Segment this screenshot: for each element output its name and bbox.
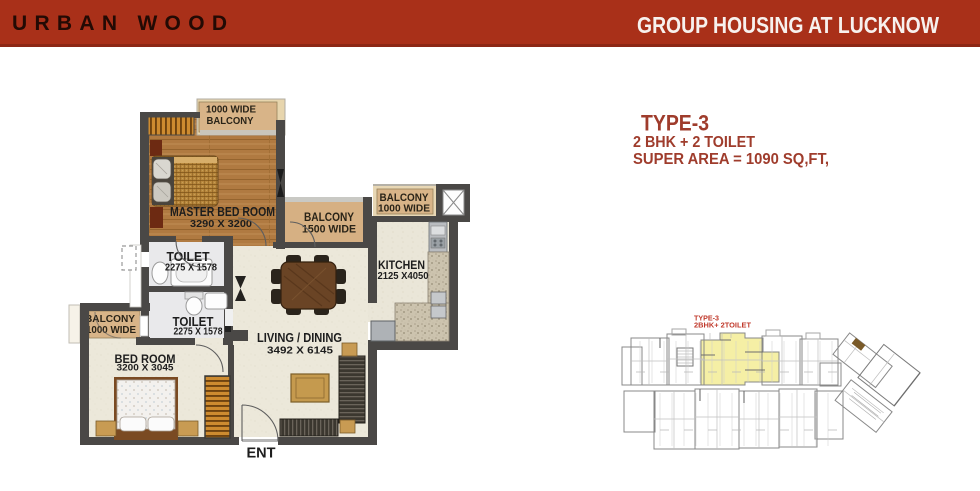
svg-text:BALCONY: BALCONY — [304, 212, 354, 224]
svg-text:1000 WIDE: 1000 WIDE — [378, 203, 430, 215]
svg-text:SUPER AREA = 1090 SQ,FT,: SUPER AREA = 1090 SQ,FT, — [633, 151, 829, 168]
svg-text:2BHK+ 2TOILET: 2BHK+ 2TOILET — [694, 321, 751, 330]
svg-text:GROUP HOUSING AT LUCKNOW: GROUP HOUSING AT LUCKNOW — [637, 12, 939, 38]
svg-text:3200 X 3045: 3200 X 3045 — [117, 363, 175, 374]
svg-text:3290 X 3200: 3290 X 3200 — [190, 218, 252, 230]
svg-text:2125 X4050: 2125 X4050 — [378, 271, 429, 282]
svg-text:TYPE-3: TYPE-3 — [641, 111, 709, 136]
svg-text:1000 WIDE: 1000 WIDE — [86, 324, 136, 336]
svg-text:MASTER BED ROOM: MASTER BED ROOM — [170, 205, 275, 219]
svg-text:2275 X 1578: 2275 X 1578 — [174, 327, 223, 338]
svg-text:1000 WIDE: 1000 WIDE — [206, 105, 256, 116]
svg-text:1500 WIDE: 1500 WIDE — [302, 224, 356, 236]
svg-text:ENT: ENT — [247, 445, 276, 462]
svg-text:3492 X 6145: 3492 X 6145 — [267, 345, 333, 357]
svg-text:KITCHEN: KITCHEN — [378, 258, 425, 272]
svg-text:2 BHK + 2 TOILET: 2 BHK + 2 TOILET — [633, 134, 755, 151]
svg-text:LIVING / DINING: LIVING / DINING — [257, 331, 342, 345]
svg-text:BALCONY: BALCONY — [207, 115, 254, 127]
